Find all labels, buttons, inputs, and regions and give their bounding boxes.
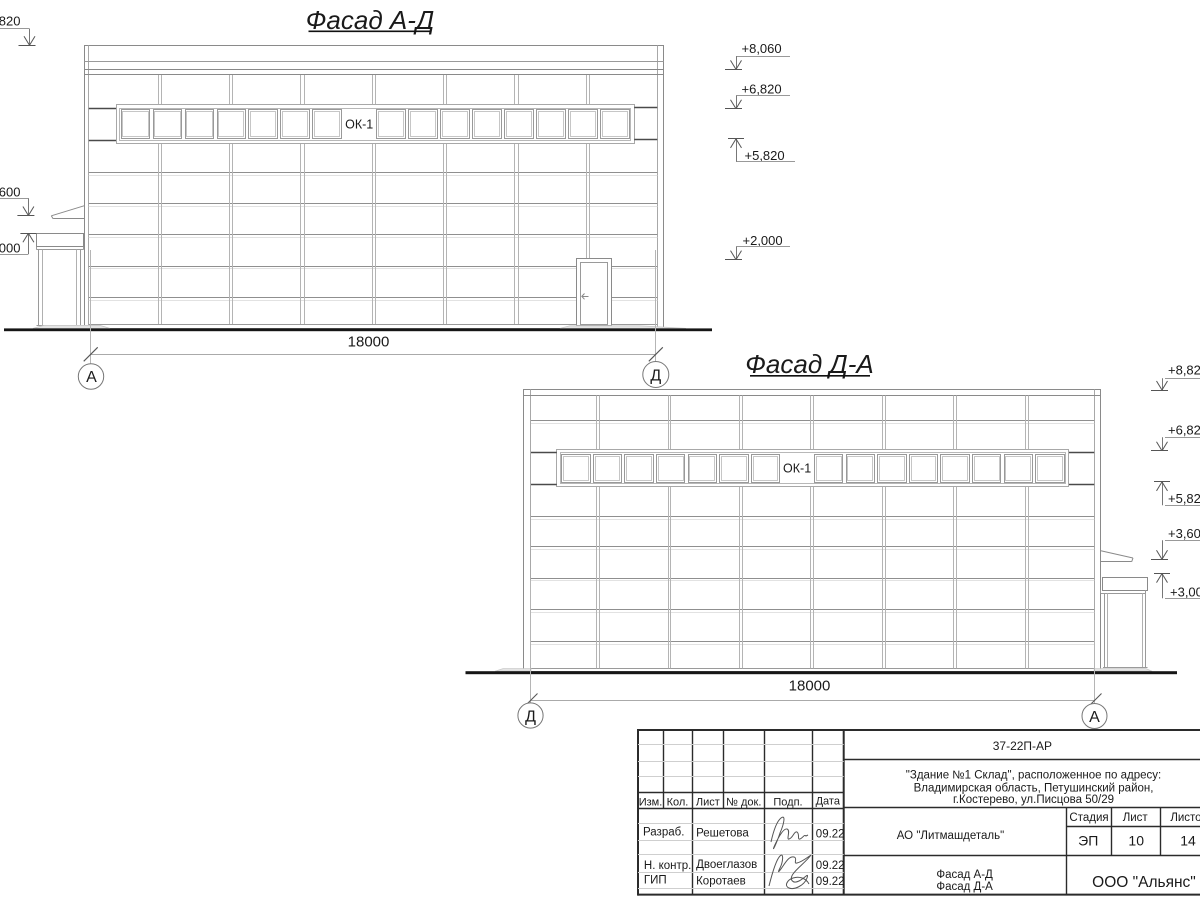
svg-text:ЭП: ЭП <box>1078 832 1098 848</box>
svg-text:000: 000 <box>0 240 21 255</box>
svg-text:Д: Д <box>525 709 536 726</box>
svg-text:ОК-1: ОК-1 <box>345 118 373 132</box>
svg-text:09.22: 09.22 <box>816 876 845 888</box>
svg-text:Фасад Д-А: Фасад Д-А <box>936 881 993 893</box>
svg-text:Кол.: Кол. <box>667 797 689 809</box>
svg-text:№ док.: № док. <box>726 797 761 809</box>
svg-text:Владимирская область, Петушинс: Владимирская область, Петушинский район, <box>914 782 1154 794</box>
svg-text:Д: Д <box>650 368 661 385</box>
svg-text:Листов: Листов <box>1170 812 1200 824</box>
svg-text:г.Костерево, ул.Писцова 50/29: г.Костерево, ул.Писцова 50/29 <box>953 794 1114 806</box>
svg-text:ООО "Альянс": ООО "Альянс" <box>1092 874 1196 891</box>
svg-text:14: 14 <box>1180 833 1196 849</box>
svg-text:ОК-1: ОК-1 <box>783 462 811 476</box>
svg-text:АО "Литмашдеталь": АО "Литмашдеталь" <box>897 830 1004 842</box>
svg-text:+2,000: +2,000 <box>743 233 783 248</box>
svg-text:Фасад А-Д: Фасад А-Д <box>936 869 993 881</box>
svg-text:Лист: Лист <box>696 797 720 809</box>
svg-text:Изм.: Изм. <box>639 797 663 809</box>
svg-text:+3,000: +3,000 <box>1170 585 1200 600</box>
svg-text:Стадия: Стадия <box>1069 812 1108 824</box>
svg-text:18000: 18000 <box>348 334 390 351</box>
svg-text:Дата: Дата <box>816 796 841 808</box>
svg-text:+3,600: +3,600 <box>1168 526 1200 541</box>
svg-text:37-22П-АР: 37-22П-АР <box>993 739 1052 753</box>
svg-text:"Здание №1 Склад", расположенн: "Здание №1 Склад", расположенное по адре… <box>906 770 1161 782</box>
svg-text:+8,060: +8,060 <box>742 41 782 56</box>
svg-text:+8,820: +8,820 <box>1168 362 1200 377</box>
svg-text:09.22: 09.22 <box>816 860 845 872</box>
svg-text:А: А <box>86 369 97 386</box>
svg-text:820: 820 <box>0 13 21 28</box>
svg-text:+6,820: +6,820 <box>742 81 782 96</box>
svg-text:Фасад Д-А: Фасад Д-А <box>745 349 874 379</box>
svg-text:Н. контр.: Н. контр. <box>644 860 691 872</box>
svg-text:А: А <box>1089 709 1100 726</box>
svg-text:Лист: Лист <box>1123 812 1149 824</box>
svg-text:ГИП: ГИП <box>644 874 667 886</box>
svg-text:18000: 18000 <box>789 678 831 695</box>
svg-text:Подп.: Подп. <box>773 797 802 809</box>
svg-text:10: 10 <box>1128 833 1144 849</box>
svg-text:Разраб.: Разраб. <box>643 827 684 839</box>
svg-text:Двоеглазов: Двоеглазов <box>696 859 757 871</box>
svg-text:600: 600 <box>0 184 21 199</box>
svg-text:+6,820: +6,820 <box>1168 422 1200 437</box>
svg-text:+5,820: +5,820 <box>745 148 785 163</box>
svg-text:Решетова: Решетова <box>696 828 749 840</box>
svg-text:09.22: 09.22 <box>816 829 845 841</box>
svg-text:+5,820: +5,820 <box>1168 491 1200 506</box>
svg-text:Коротаев: Коротаев <box>696 875 746 887</box>
